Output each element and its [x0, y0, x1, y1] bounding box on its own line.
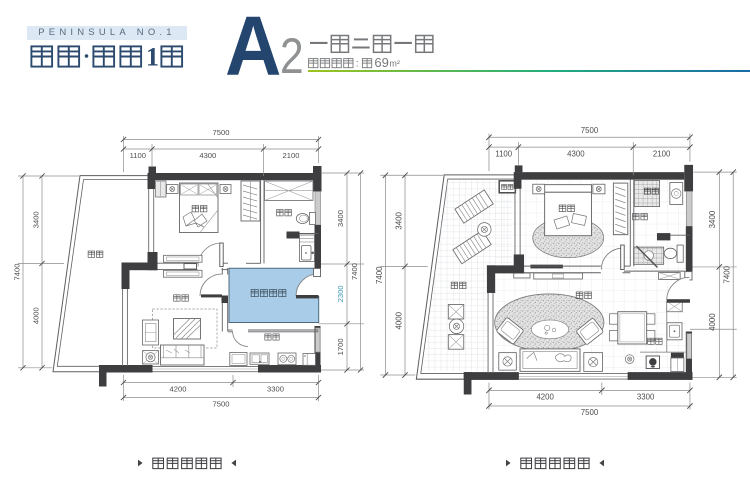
svg-text:7400: 7400	[350, 263, 359, 280]
svg-text:3400: 3400	[32, 211, 41, 228]
svg-text:3300: 3300	[267, 384, 284, 393]
svg-text:1100: 1100	[495, 149, 512, 158]
svg-text:7400: 7400	[375, 266, 384, 284]
svg-text:1700: 1700	[336, 338, 345, 355]
svg-text:4000: 4000	[708, 313, 717, 331]
svg-text:1: 1	[146, 43, 159, 72]
svg-text:4000: 4000	[394, 311, 403, 329]
svg-text:m²: m²	[389, 59, 400, 69]
svg-text:2100: 2100	[283, 151, 300, 160]
svg-text:3400: 3400	[394, 211, 403, 229]
svg-text:4300: 4300	[567, 149, 585, 158]
svg-text:3400: 3400	[708, 210, 717, 228]
svg-text:7500: 7500	[581, 408, 599, 417]
svg-text:1100: 1100	[130, 151, 146, 160]
svg-text:7500: 7500	[213, 128, 230, 137]
svg-text:4200: 4200	[170, 384, 187, 393]
svg-text:7400: 7400	[723, 265, 732, 283]
svg-text::: :	[356, 58, 359, 70]
svg-text:2300: 2300	[336, 285, 345, 302]
svg-text:2100: 2100	[653, 149, 671, 158]
svg-text:7500: 7500	[213, 399, 230, 408]
svg-text:3400: 3400	[336, 210, 345, 227]
svg-text:4200: 4200	[536, 392, 554, 401]
svg-text:4300: 4300	[199, 151, 216, 160]
svg-text:3300: 3300	[637, 392, 655, 401]
svg-text:7500: 7500	[581, 126, 599, 135]
svg-text:7400: 7400	[13, 264, 22, 281]
svg-text:69: 69	[374, 55, 388, 70]
svg-text:4000: 4000	[32, 307, 41, 324]
